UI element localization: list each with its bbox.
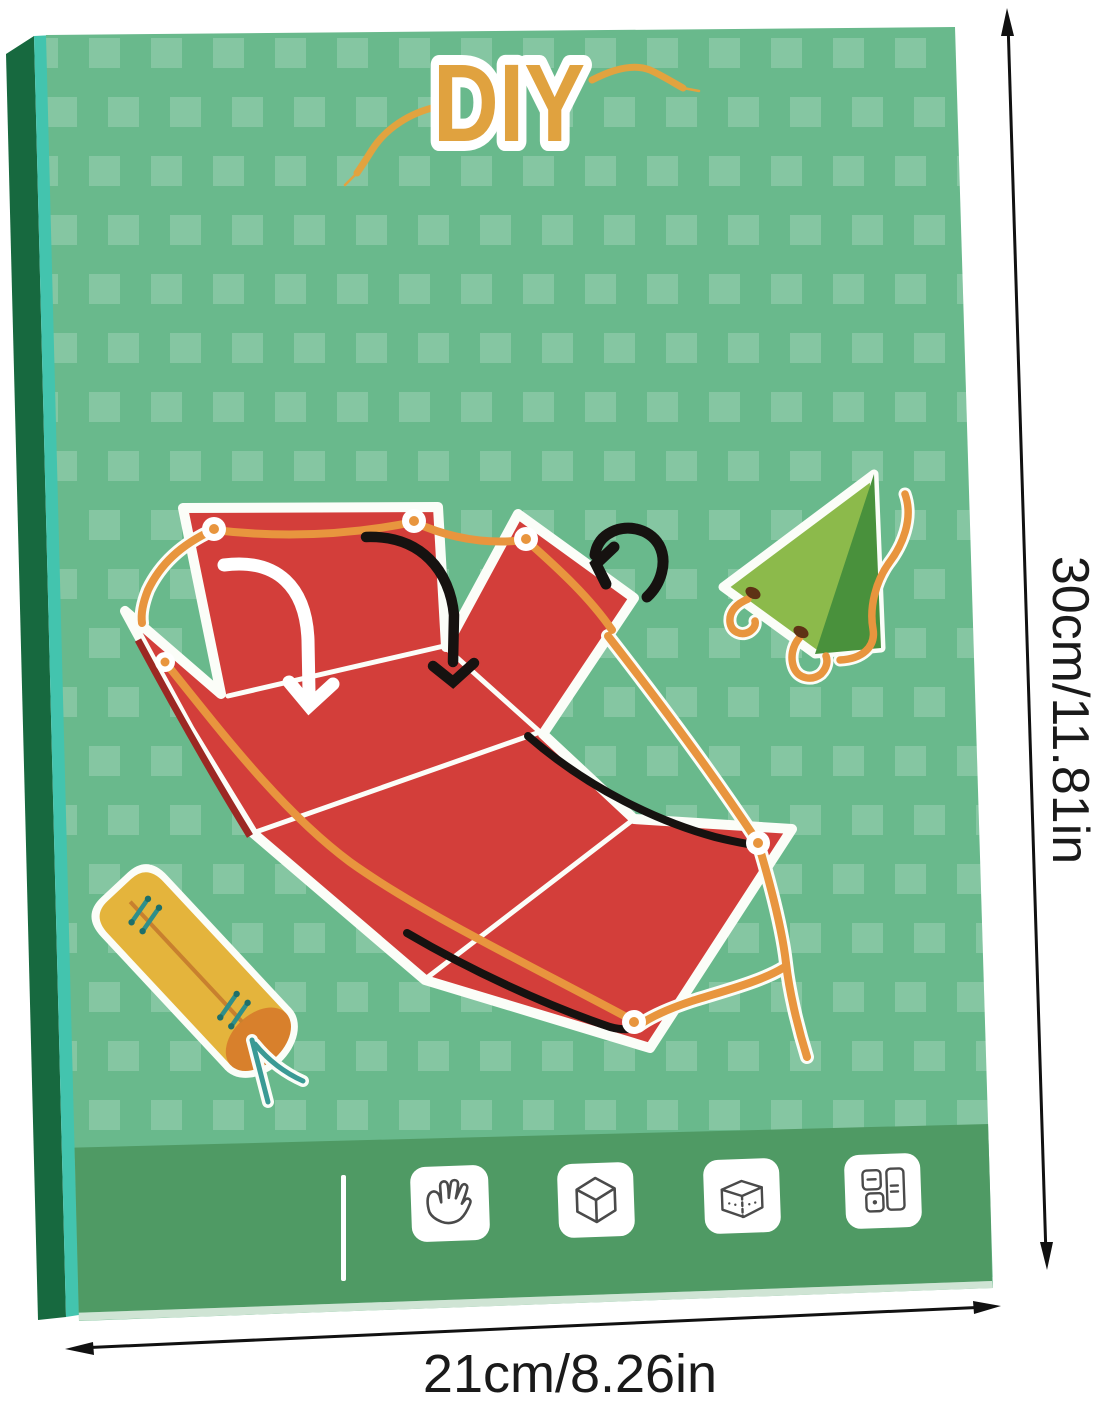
svg-text:DIY: DIY: [433, 42, 585, 165]
svg-text:21cm/8.26in: 21cm/8.26in: [423, 1344, 717, 1402]
svg-text:30cm/11.81in: 30cm/11.81in: [1041, 556, 1099, 864]
